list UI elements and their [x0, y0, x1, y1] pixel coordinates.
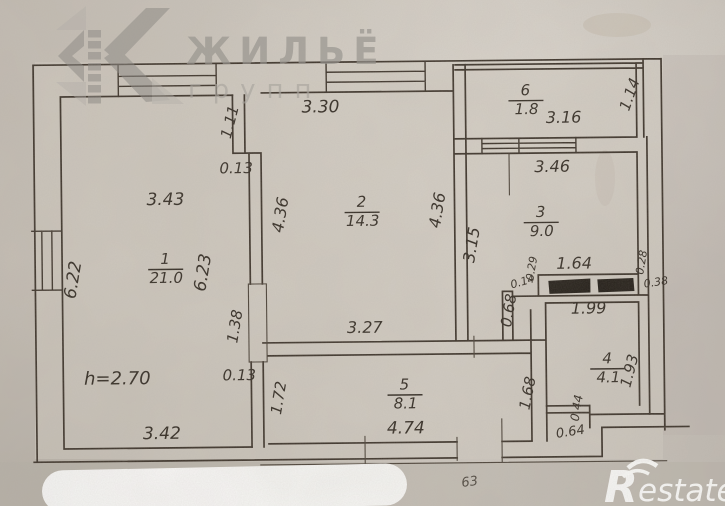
floorplan-svg: 3.301.110.133.434.364.366.226.231.380.13…	[0, 0, 725, 506]
paper-grain-texture	[0, 0, 725, 506]
floorplan-scan: 3.301.110.133.434.364.366.226.231.380.13…	[0, 0, 725, 506]
